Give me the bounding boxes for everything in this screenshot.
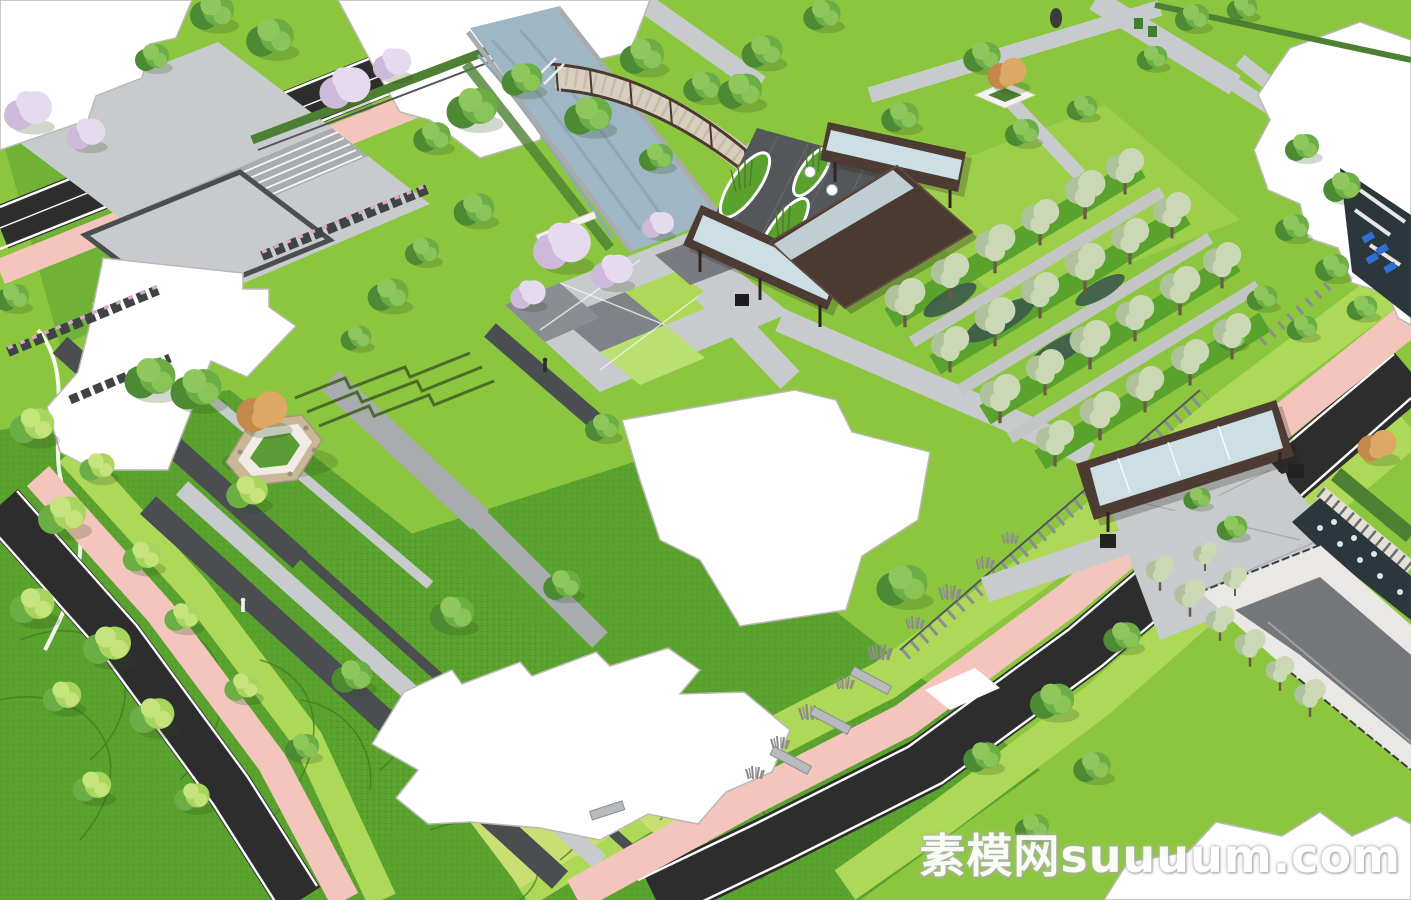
- recycle-bin: [1148, 26, 1157, 37]
- person: [241, 598, 246, 612]
- planter-cube: [1100, 534, 1116, 548]
- recycle-bin: [1134, 18, 1143, 29]
- person: [543, 358, 548, 372]
- landscape-render-canvas: 素模网suuuum.com: [0, 0, 1411, 900]
- sculpture: [1050, 8, 1062, 28]
- planter-cube: [735, 294, 749, 306]
- planter-cube: [1288, 464, 1304, 478]
- landscape-render: [0, 0, 1411, 900]
